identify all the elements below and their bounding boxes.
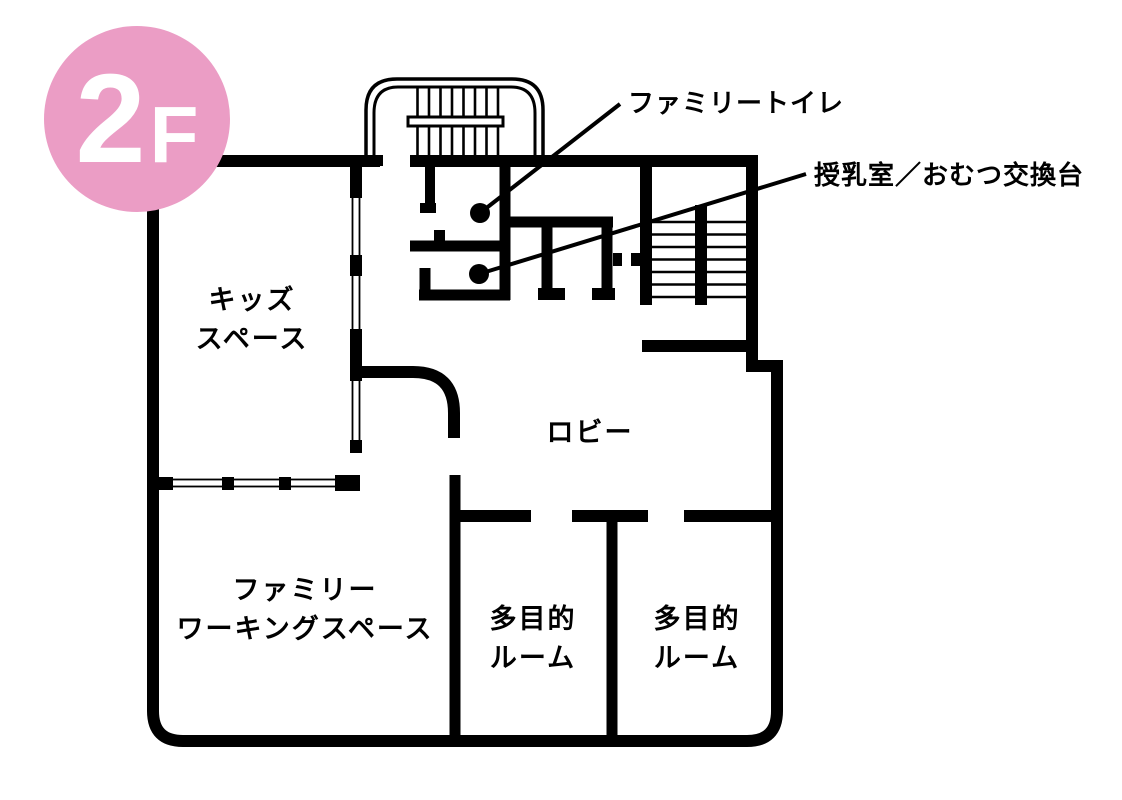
floor-suffix: F (150, 42, 199, 228)
curved-lobby-wall (362, 372, 454, 438)
nursing-room-dot (469, 264, 489, 284)
toilet-mid-jamb (434, 230, 445, 241)
glass-post (222, 477, 234, 490)
glass-post (350, 440, 362, 453)
multipurpose-room-1-label-line2: ルーム (490, 639, 577, 678)
glass-post (335, 475, 360, 491)
nursing-room-callout-label: 授乳室／おむつ交換台 (814, 161, 1084, 189)
multipurpose-room-2-label-line2: ルーム (654, 639, 741, 678)
glass-post (350, 255, 362, 276)
floor-plan-2f: 2 F キッズ スペース ロビー ファミリー ワーキングスペース 多目的 ルーム… (0, 0, 1122, 800)
multipurpose-room-1-label: 多目的 ルーム (490, 600, 577, 678)
glass-wall-horizontal (160, 480, 348, 487)
family-working-space-label: ファミリー ワーキングスペース (177, 571, 434, 649)
glass-post (350, 329, 362, 381)
lobby-label: ロビー (547, 414, 634, 453)
top-staircase (355, 79, 543, 166)
right-stair-treads (652, 222, 746, 297)
top-stair-handrail (408, 117, 503, 126)
glass-post (157, 477, 173, 490)
vestibule-walls (505, 222, 615, 294)
stair-door-jamb-left (613, 253, 622, 266)
glass-post (350, 155, 362, 198)
family-toilet-dot (470, 203, 490, 223)
multipurpose-room-2-label: 多目的 ルーム (654, 600, 741, 678)
kids-space-label-line2: スペース (196, 320, 309, 359)
floor-badge: 2 F (44, 26, 230, 212)
family-working-space-label-line1: ファミリー (177, 571, 434, 610)
glass-wall-vertical (353, 161, 360, 447)
multipurpose-room-1-label-line1: 多目的 (490, 600, 577, 639)
kids-space-label-line1: キッズ (196, 281, 309, 320)
lobby-label-line1: ロビー (547, 414, 634, 453)
multipurpose-room-2-label-line1: 多目的 (654, 600, 741, 639)
right-staircase (613, 161, 752, 346)
glass-post (279, 477, 291, 490)
stair-door-jamb-right (631, 253, 641, 266)
toilet-rooms-walls (410, 161, 510, 300)
floor-number: 2 (76, 26, 146, 212)
family-working-space-label-line2: ワーキングスペース (177, 610, 434, 649)
family-toilet-callout-label: ファミリートイレ (628, 89, 844, 117)
kids-space-label: キッズ スペース (196, 281, 309, 359)
